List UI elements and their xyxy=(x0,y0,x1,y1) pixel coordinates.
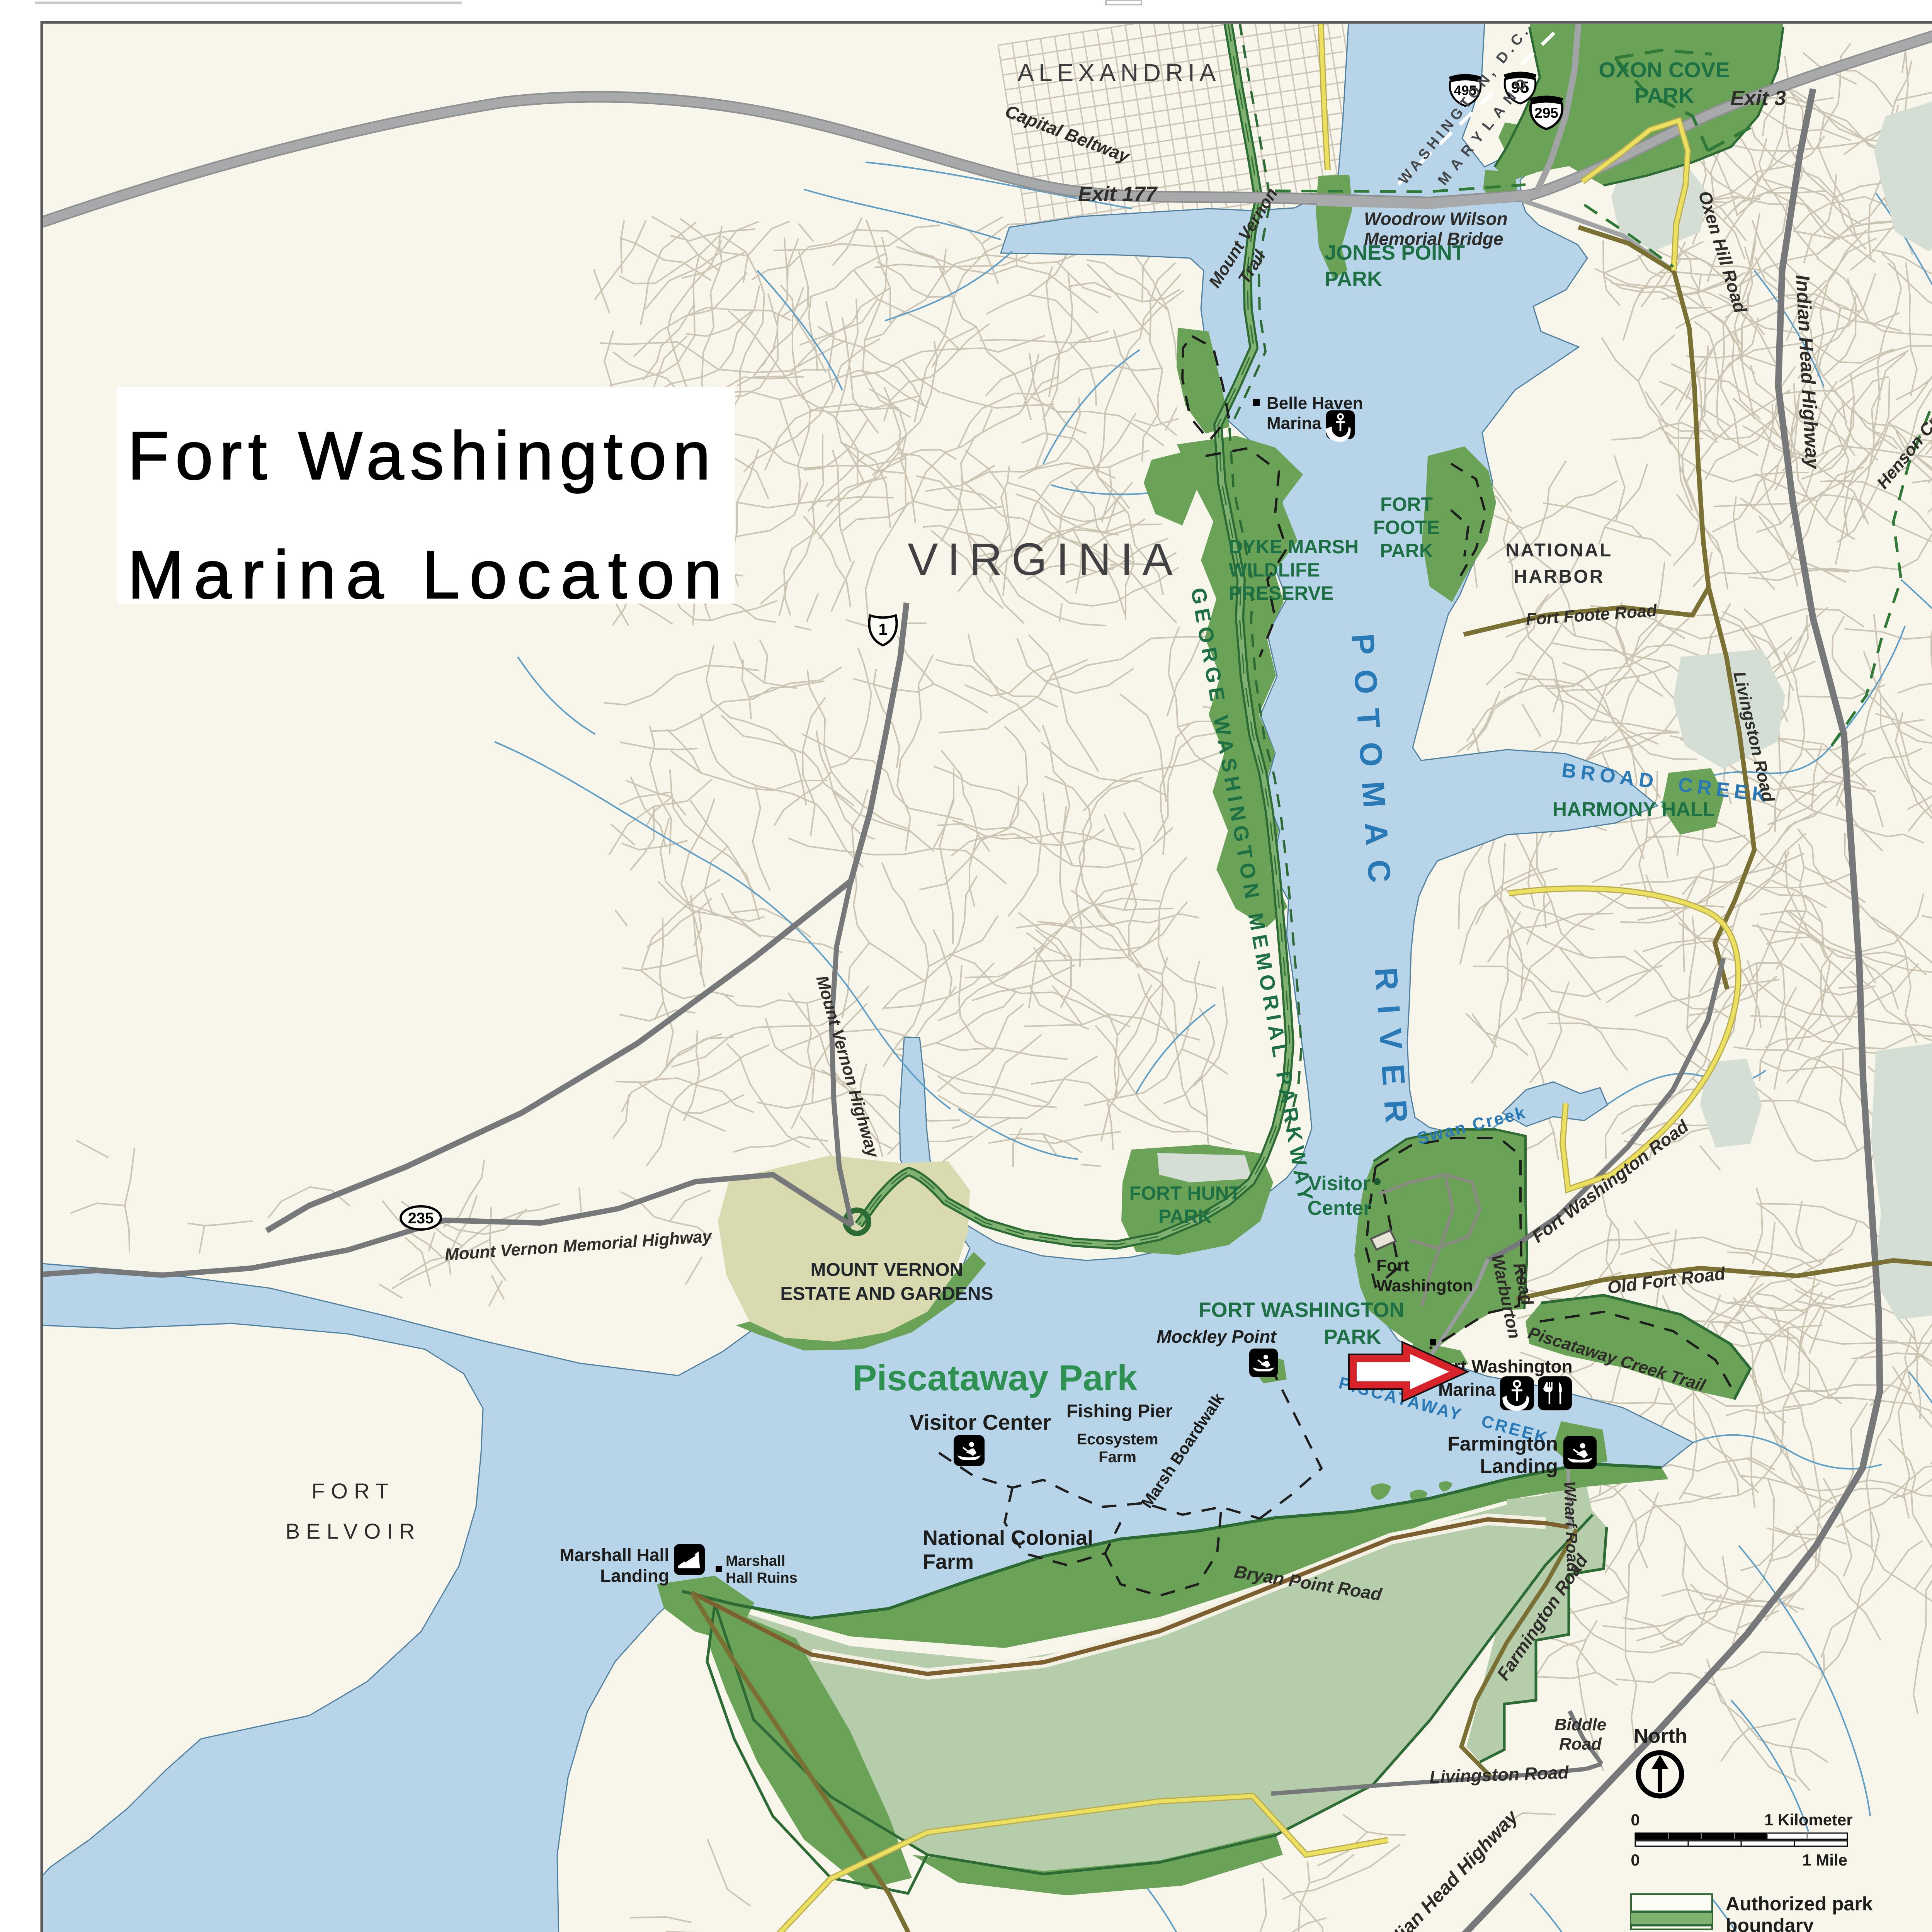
svg-text:Washington: Washington xyxy=(1376,1276,1473,1295)
svg-text:Visitor Center: Visitor Center xyxy=(910,1410,1051,1434)
svg-text:Fort Washington: Fort Washington xyxy=(128,418,717,494)
svg-text:Fort: Fort xyxy=(1376,1256,1410,1275)
svg-text:HARMONY HALL: HARMONY HALL xyxy=(1553,798,1715,821)
svg-text:NATIONAL: NATIONAL xyxy=(1506,540,1612,561)
svg-text:Farm: Farm xyxy=(923,1550,974,1573)
svg-text:PRESERVE: PRESERVE xyxy=(1229,582,1333,604)
svg-text:0: 0 xyxy=(1631,1851,1639,1869)
svg-text:BELVOIR: BELVOIR xyxy=(286,1519,421,1543)
svg-text:VIRGINIA: VIRGINIA xyxy=(908,534,1182,585)
svg-text:DYKE MARSH: DYKE MARSH xyxy=(1229,536,1359,558)
svg-text:WILDLIFE: WILDLIFE xyxy=(1229,559,1320,581)
svg-text:Marshall Hall: Marshall Hall xyxy=(560,1545,669,1565)
svg-text:Farmington: Farmington xyxy=(1447,1433,1558,1455)
svg-text:Biddle: Biddle xyxy=(1554,1715,1606,1734)
svg-text:MOUNT VERNON: MOUNT VERNON xyxy=(811,1260,963,1280)
svg-text:Fishing Pier: Fishing Pier xyxy=(1066,1401,1173,1422)
svg-text:1 Kilometer: 1 Kilometer xyxy=(1764,1811,1853,1829)
svg-text:Landing: Landing xyxy=(600,1566,669,1586)
svg-text:PARK: PARK xyxy=(1380,540,1433,561)
svg-text:0: 0 xyxy=(1631,1811,1639,1829)
svg-text:PARK: PARK xyxy=(1325,267,1382,291)
svg-text:Exit 177: Exit 177 xyxy=(1078,182,1158,206)
svg-text:OXON COVE: OXON COVE xyxy=(1599,58,1730,82)
svg-text:Authorized park: Authorized park xyxy=(1726,1893,1873,1915)
svg-text:Marina: Marina xyxy=(1267,414,1321,433)
svg-text:ESTATE AND GARDENS: ESTATE AND GARDENS xyxy=(780,1284,993,1304)
svg-text:National Colonial: National Colonial xyxy=(923,1526,1093,1549)
svg-text:Landing: Landing xyxy=(1480,1455,1558,1478)
svg-text:1 Mile: 1 Mile xyxy=(1802,1851,1847,1869)
svg-text:Mockley Point: Mockley Point xyxy=(1156,1327,1277,1347)
svg-text:PARK: PARK xyxy=(1158,1206,1212,1227)
svg-text:FORT: FORT xyxy=(311,1479,395,1503)
svg-text:1: 1 xyxy=(878,620,887,638)
svg-text:Marshall: Marshall xyxy=(726,1553,785,1569)
svg-text:Road: Road xyxy=(1559,1735,1602,1753)
svg-text:FORT HUNT: FORT HUNT xyxy=(1129,1182,1241,1204)
svg-text:Marina: Marina xyxy=(1438,1379,1496,1400)
svg-text:Visitor: Visitor xyxy=(1308,1172,1371,1195)
svg-text:MARYLAND: MARYLAND xyxy=(1003,1925,1323,1932)
svg-text:PARK: PARK xyxy=(1634,83,1694,107)
svg-text:295: 295 xyxy=(1534,105,1558,121)
svg-text:Piscataway Park: Piscataway Park xyxy=(853,1357,1138,1398)
svg-text:Hall Ruins: Hall Ruins xyxy=(726,1570,798,1586)
svg-text:FORT WASHINGTON: FORT WASHINGTON xyxy=(1199,1298,1405,1321)
svg-text:FORT: FORT xyxy=(1380,493,1433,515)
svg-text:FOOTE: FOOTE xyxy=(1373,517,1440,538)
svg-text:Exit 3: Exit 3 xyxy=(1730,87,1786,110)
svg-text:boundary: boundary xyxy=(1726,1915,1814,1932)
svg-text:Belle Haven: Belle Haven xyxy=(1267,394,1363,413)
svg-text:Ecosystem: Ecosystem xyxy=(1077,1431,1158,1448)
svg-text:Memorial Bridge: Memorial Bridge xyxy=(1364,229,1503,249)
svg-text:ALEXANDRIA: ALEXANDRIA xyxy=(1017,59,1220,87)
svg-text:235: 235 xyxy=(408,1210,434,1227)
svg-text:Farm: Farm xyxy=(1099,1449,1136,1466)
svg-text:Woodrow Wilson: Woodrow Wilson xyxy=(1364,209,1508,229)
svg-text:PARK: PARK xyxy=(1323,1325,1381,1349)
svg-text:North: North xyxy=(1634,1725,1687,1747)
svg-text:HARBOR: HARBOR xyxy=(1514,566,1605,587)
svg-text:Marina Locaton: Marina Locaton xyxy=(128,537,731,613)
